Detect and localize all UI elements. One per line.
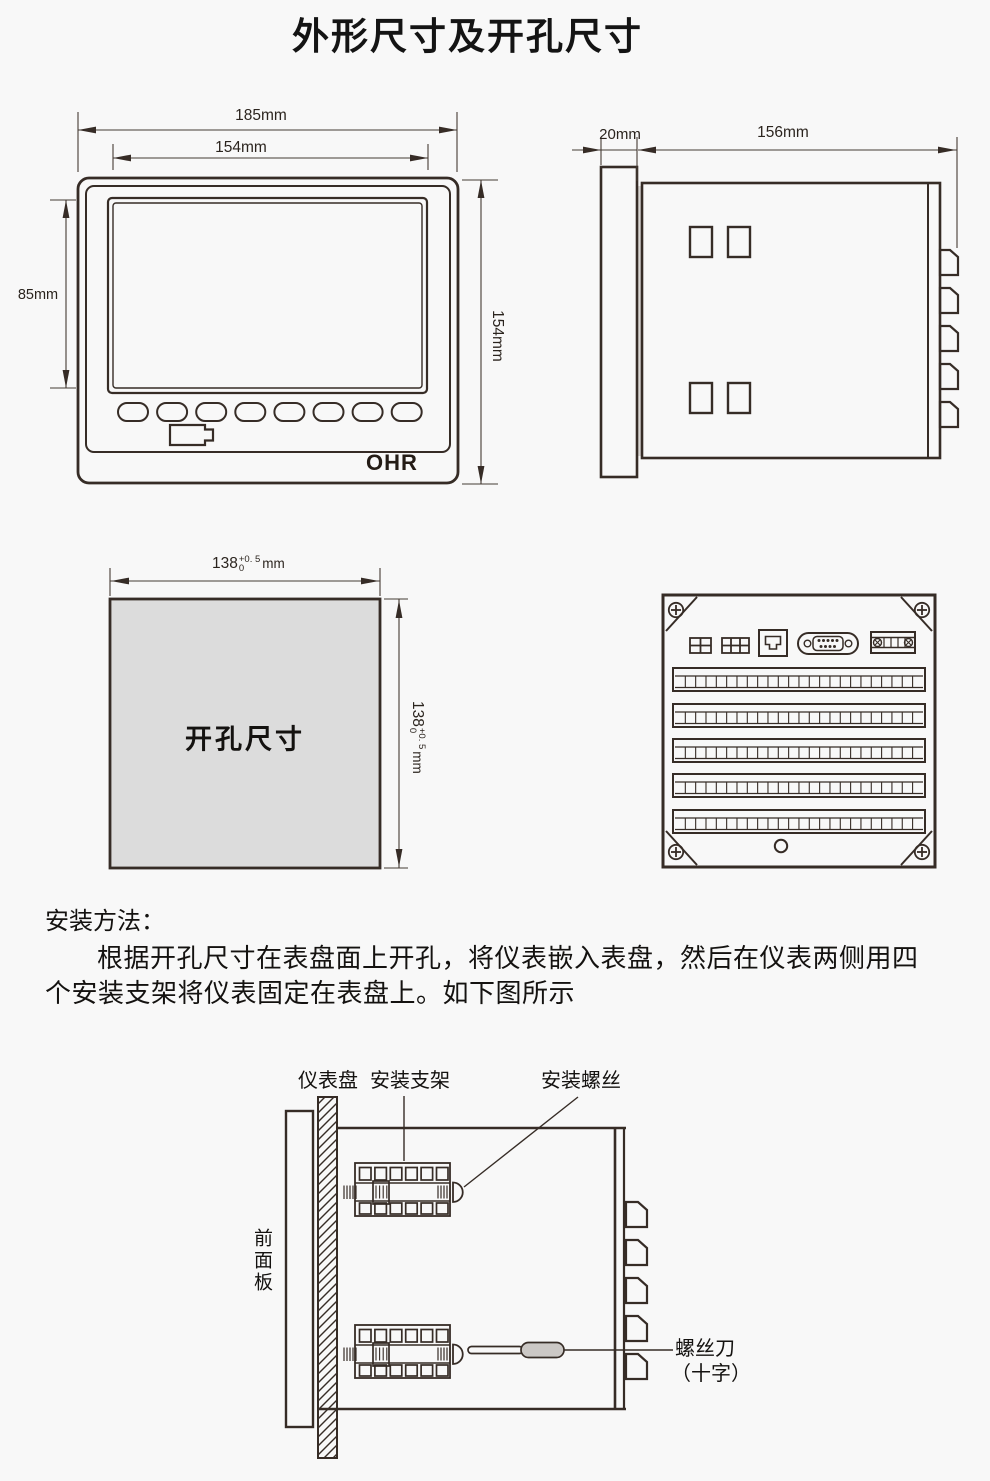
manual-page: 外形尺寸及开孔尺寸 185mm 154mm 85mm 154mm 20mm 15… bbox=[0, 0, 990, 1481]
usb-port-icon bbox=[170, 425, 213, 445]
terminal-tab bbox=[626, 1240, 647, 1265]
connector-2x2 bbox=[690, 638, 711, 653]
leader-lines bbox=[404, 1096, 673, 1350]
screw-head bbox=[453, 1345, 463, 1365]
dim-label-20mm: 20mm bbox=[599, 127, 641, 142]
front-button bbox=[157, 403, 187, 421]
install-paragraph-line2: 个安装支架将仪表固定在表盘上。如下图所示 bbox=[45, 981, 575, 1007]
terminal-tab bbox=[940, 402, 958, 427]
panel-label: 仪表盘 bbox=[298, 1071, 358, 1091]
cutout-view bbox=[110, 568, 408, 868]
screwdriver-handle bbox=[521, 1343, 564, 1358]
terminal-strips bbox=[673, 668, 925, 833]
dim-label-85mm: 85mm bbox=[18, 288, 58, 303]
front-button bbox=[314, 403, 344, 421]
terminal-tab bbox=[626, 1202, 647, 1227]
terminal-tab bbox=[940, 326, 958, 351]
terminal-strip bbox=[673, 668, 925, 691]
arrowhead bbox=[78, 127, 96, 134]
screw-icon bbox=[915, 603, 929, 617]
terminal-strip bbox=[673, 704, 925, 727]
terminal-tab bbox=[626, 1316, 647, 1341]
arrowhead bbox=[583, 147, 601, 154]
screen-inner bbox=[113, 203, 422, 388]
terminal-tab bbox=[626, 1354, 647, 1379]
screw-icon bbox=[915, 845, 929, 859]
tolerance-upper: +0. 5 bbox=[417, 728, 426, 749]
side-body bbox=[642, 183, 940, 458]
arrowhead bbox=[638, 147, 656, 154]
front-button bbox=[274, 403, 304, 421]
side-dimensions bbox=[572, 137, 957, 248]
brand-logo: OHR bbox=[366, 452, 418, 474]
arrowhead bbox=[439, 127, 457, 134]
dimension-drawing bbox=[0, 0, 990, 1481]
db9-serial-port-icon bbox=[798, 633, 858, 654]
arrowhead bbox=[63, 200, 70, 218]
terminal-tab bbox=[626, 1278, 647, 1303]
install-paragraph-line1: 根据开孔尺寸在表盘面上开孔，将仪表嵌入表盘，然后在仪表两侧用四 bbox=[97, 946, 919, 972]
terminal-strip bbox=[673, 810, 925, 833]
front-dimensions bbox=[50, 112, 498, 484]
dim-label-154mm-top: 154mm bbox=[215, 140, 267, 156]
rear-view bbox=[663, 595, 935, 867]
terminal-tab bbox=[940, 364, 958, 389]
dim-label-185mm: 185mm bbox=[235, 108, 287, 124]
arrowhead bbox=[410, 155, 428, 162]
install-heading: 安装方法： bbox=[45, 910, 165, 934]
arrowhead bbox=[478, 180, 485, 198]
front-button bbox=[196, 403, 226, 421]
screwdriver-label-line2: （十字） bbox=[671, 1364, 751, 1384]
front-panel-label: 前面板 bbox=[252, 1228, 271, 1294]
screw-label: 安装螺丝 bbox=[541, 1071, 621, 1091]
terminal-strip bbox=[673, 774, 925, 797]
front-button bbox=[392, 403, 422, 421]
arrowhead bbox=[111, 578, 129, 585]
front-button bbox=[353, 403, 383, 421]
front-button bbox=[118, 403, 148, 421]
dim-value: 138 bbox=[212, 556, 238, 572]
front-button bbox=[235, 403, 265, 421]
arrowhead bbox=[396, 849, 403, 867]
mounting-bracket-assembly bbox=[344, 1325, 463, 1378]
dim-unit: mm bbox=[262, 557, 285, 571]
mounting-brackets bbox=[344, 1163, 463, 1378]
screw-head bbox=[453, 1183, 463, 1203]
front-panel-part bbox=[286, 1111, 313, 1427]
mounting-panel-hatched bbox=[318, 1097, 337, 1458]
terminal-tab bbox=[940, 250, 958, 275]
arrowhead bbox=[361, 578, 379, 585]
connector-3x2 bbox=[722, 638, 749, 653]
screwdriver-shaft bbox=[468, 1347, 523, 1354]
bracket-label: 安装支架 bbox=[370, 1071, 450, 1091]
install-diagram bbox=[286, 1096, 673, 1458]
dim-value: 138 bbox=[409, 701, 425, 727]
arrowhead bbox=[63, 370, 70, 388]
terminal-strip bbox=[673, 739, 925, 762]
dim-label-138-top: 138+0. 50mm bbox=[212, 555, 285, 573]
arrowhead bbox=[478, 466, 485, 484]
dim-unit: mm bbox=[410, 751, 424, 774]
power-terminal-block bbox=[871, 632, 915, 653]
tolerance-lower: 0 bbox=[408, 728, 417, 749]
front-view bbox=[78, 178, 458, 483]
screwdriver-label-line1: 螺丝刀 bbox=[675, 1339, 735, 1359]
db9-pins bbox=[818, 639, 839, 648]
ethernet-port-icon bbox=[759, 630, 787, 656]
cutout-label: 开孔尺寸 bbox=[185, 727, 305, 754]
side-bezel bbox=[601, 167, 637, 477]
front-buttons bbox=[118, 403, 422, 421]
dim-label-154mm-right: 154mm bbox=[489, 310, 505, 362]
rear-hole bbox=[775, 840, 787, 852]
screw-icon bbox=[669, 845, 683, 859]
terminal-tab bbox=[940, 288, 958, 313]
dim-label-156mm: 156mm bbox=[757, 125, 809, 141]
screen-outer bbox=[108, 198, 427, 393]
screwdriver bbox=[468, 1343, 564, 1358]
side-view bbox=[601, 167, 958, 477]
page-title: 外形尺寸及开孔尺寸 bbox=[292, 18, 643, 55]
arrowhead bbox=[113, 155, 131, 162]
screw-icon bbox=[669, 603, 683, 617]
side-terminal-tabs bbox=[940, 250, 958, 427]
arrowhead bbox=[938, 147, 956, 154]
arrowhead bbox=[396, 600, 403, 618]
mounting-bracket-assembly bbox=[344, 1163, 463, 1216]
tolerance-lower: 0 bbox=[239, 564, 260, 573]
rear-terminal-tabs bbox=[626, 1202, 647, 1379]
dim-label-138-right: 138+0. 50mm bbox=[408, 701, 426, 774]
